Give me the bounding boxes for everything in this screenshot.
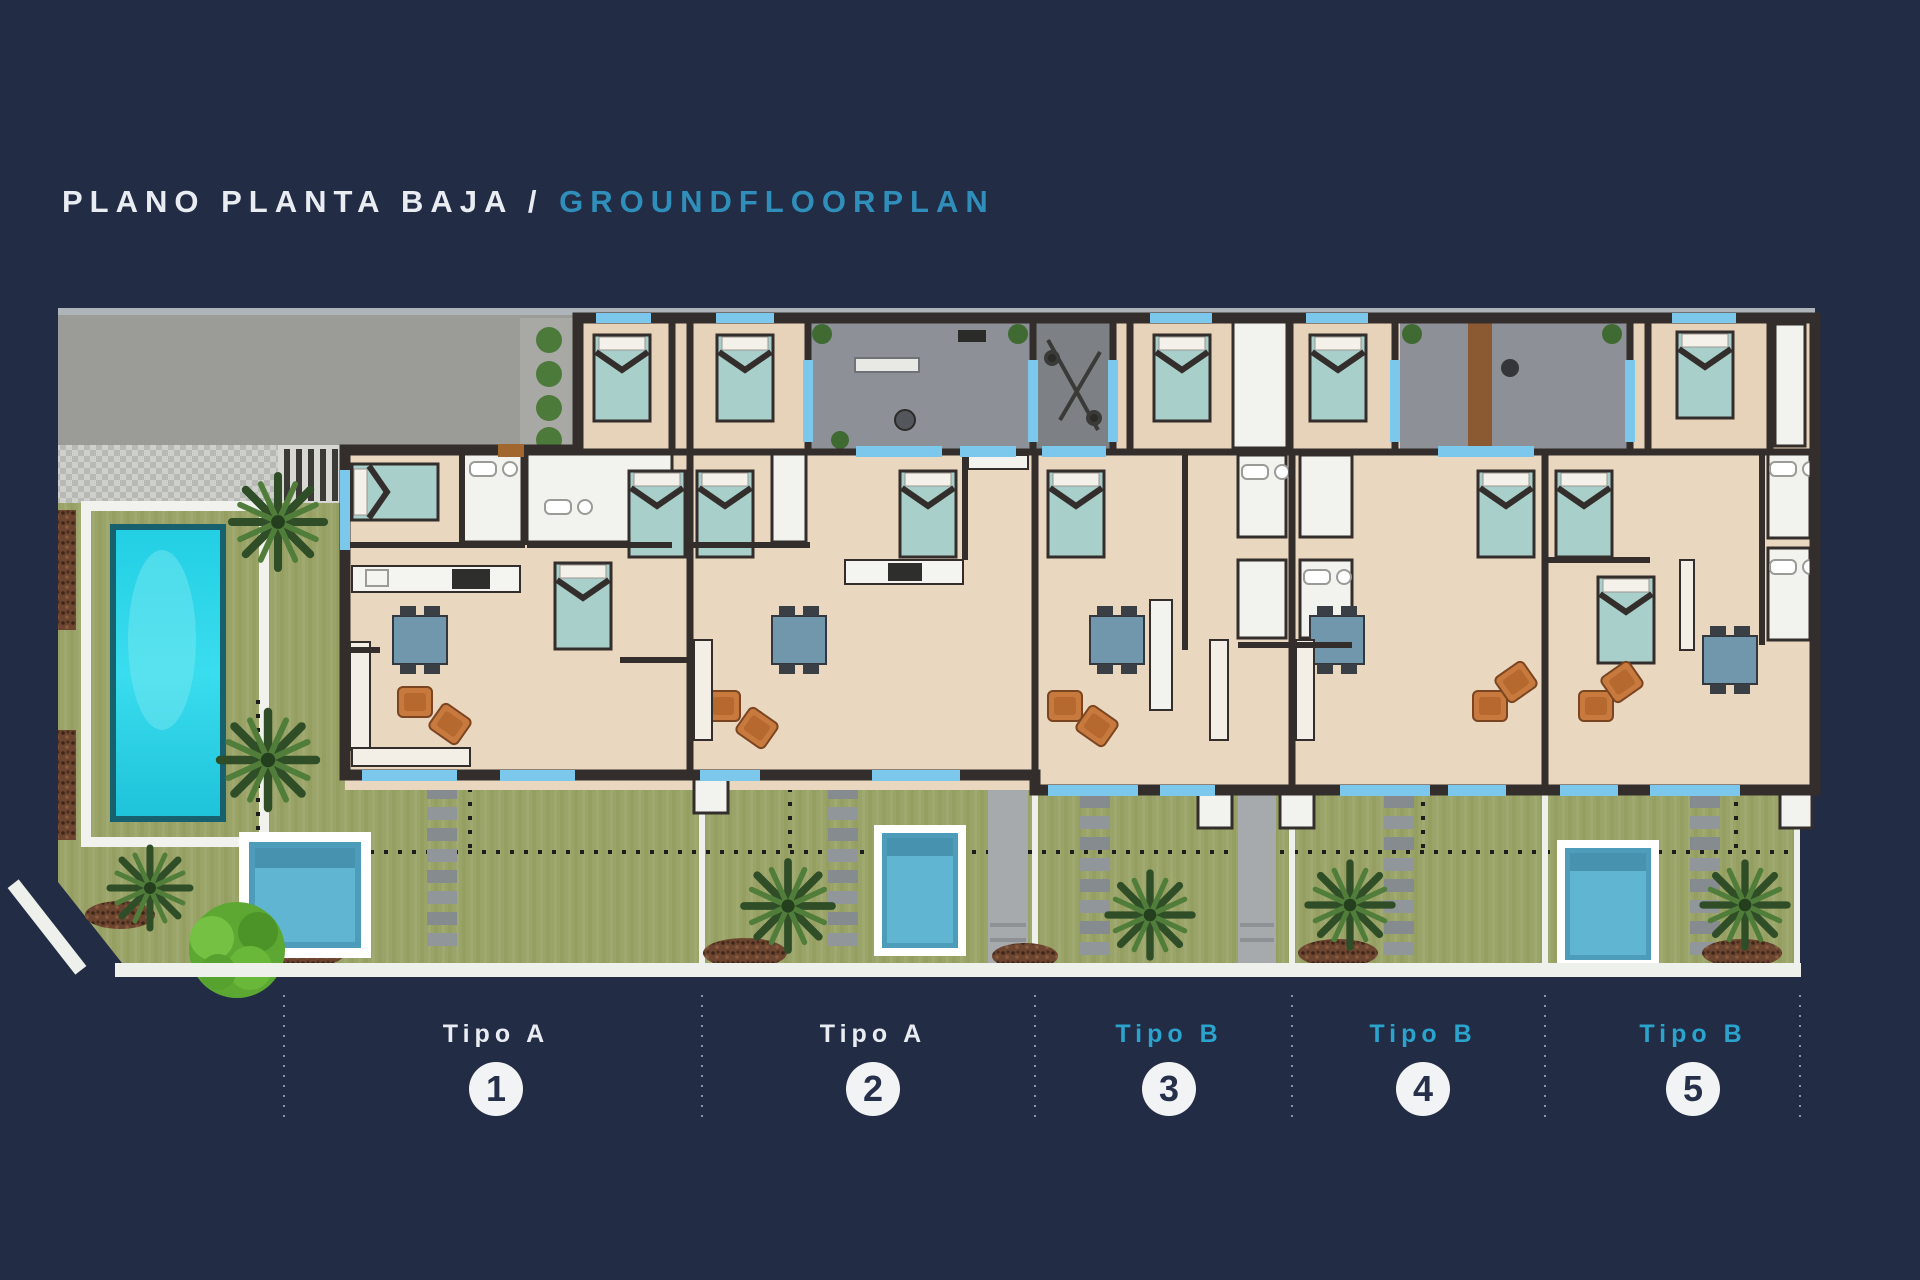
bed-icon	[1598, 577, 1654, 663]
mulch-patch	[1298, 939, 1378, 967]
palm-tree-icon	[1308, 863, 1392, 947]
bed-icon	[1310, 335, 1366, 421]
dining-set-icon	[1090, 606, 1144, 674]
bath-fixtures-icon	[545, 500, 592, 514]
armchair-icon	[398, 687, 432, 717]
unit-number: 2	[863, 1068, 883, 1109]
bed-icon	[1048, 471, 1104, 557]
bath-fixtures-icon	[1242, 465, 1289, 479]
kitchen-unit1	[352, 566, 520, 592]
mulch-strip	[58, 510, 76, 630]
palm-tree-icon	[744, 862, 832, 950]
pool-highlight	[128, 550, 196, 730]
dining-set-icon	[1703, 626, 1757, 694]
armchair-icon	[1473, 691, 1507, 721]
bed-icon	[1556, 471, 1612, 557]
bath-fixtures-icon	[1304, 570, 1351, 584]
armchair-icon	[1048, 691, 1082, 721]
unit-number: 3	[1159, 1068, 1179, 1109]
bush-icon	[189, 902, 285, 998]
floorplan-canvas: PLANO PLANTA BAJA / GROUNDFLOORPLAN	[0, 0, 1920, 1280]
unit-number: 5	[1683, 1068, 1703, 1109]
unit-type-label: Tipo A	[443, 1020, 549, 1048]
title-separator: /	[512, 184, 559, 219]
title-english: GROUNDFLOORPLAN	[559, 184, 995, 219]
floorplan-page: PLANO PLANTA BAJA / GROUNDFLOORPLAN	[0, 0, 1920, 1280]
unit-type-label: Tipo B	[1115, 1020, 1222, 1048]
dining-set-icon	[772, 606, 826, 674]
palm-tree-icon	[220, 712, 316, 808]
bath-fixtures-icon	[470, 462, 517, 476]
armchair-icon	[1579, 691, 1613, 721]
plunge-pool-unit2	[874, 825, 966, 956]
bed-icon	[1677, 332, 1733, 418]
shared-walkway	[1238, 790, 1276, 963]
bed-icon	[1478, 471, 1534, 557]
dining-set-icon	[393, 606, 447, 674]
palm-tree-icon	[110, 848, 190, 928]
patio-court	[1400, 318, 1630, 452]
bed-icon	[1154, 335, 1210, 421]
kitchen-unit2	[845, 560, 963, 584]
shared-walkway	[988, 775, 1028, 963]
bed-icon	[717, 335, 773, 421]
unit-number: 4	[1413, 1068, 1433, 1109]
title-spanish: PLANO PLANTA BAJA	[62, 184, 512, 219]
bed-icon	[900, 471, 956, 557]
plunge-pool-unit5	[1557, 840, 1659, 968]
bed-icon	[352, 464, 438, 520]
entry-door	[498, 444, 524, 457]
unit-number: 1	[486, 1068, 506, 1109]
site-plan	[8, 308, 1817, 998]
driveway	[58, 315, 578, 447]
perimeter-path	[115, 963, 1801, 977]
palm-tree-icon	[1108, 873, 1192, 957]
mulch-strip	[58, 730, 76, 840]
palm-tree-icon	[1703, 863, 1787, 947]
palm-tree-icon	[232, 476, 324, 568]
unit-type-label: Tipo B	[1639, 1020, 1746, 1048]
unit-type-label: Tipo A	[820, 1020, 926, 1048]
bed-icon	[555, 563, 611, 649]
bed-icon	[594, 335, 650, 421]
unit-type-label: Tipo B	[1369, 1020, 1476, 1048]
dining-set-icon	[1310, 606, 1364, 674]
page-title: PLANO PLANTA BAJA / GROUNDFLOORPLAN	[62, 184, 995, 219]
